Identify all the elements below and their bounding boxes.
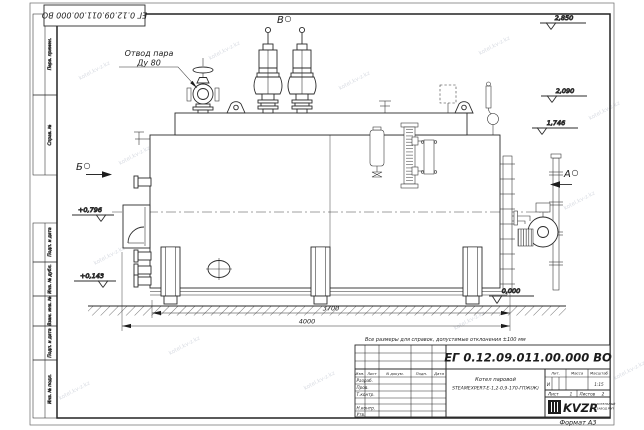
lifting-lug — [227, 102, 245, 113]
pressure-gauge-siphon — [486, 82, 499, 135]
margin-column-podp-data-1: Подп. и дата — [33, 223, 57, 262]
svg-text:2,850: 2,850 — [555, 14, 574, 22]
company-sub-1: КОТЕЛЬНЫЙ — [597, 401, 617, 406]
svg-text:2,090: 2,090 — [556, 87, 575, 95]
sheets-total: 2 — [602, 392, 605, 397]
view-marker-b: Б — [76, 162, 112, 178]
steam-outlet-valve — [187, 58, 219, 113]
col-doc: N докум. — [386, 371, 404, 376]
lifting-lug — [455, 102, 473, 113]
svg-text:Перв. примен.: Перв. примен. — [47, 38, 53, 70]
doc-number: ЕГ 0.12.09.011.00.000 ВО — [444, 351, 612, 365]
col-izm: Изм. — [356, 371, 365, 376]
left-nozzle-mid — [134, 250, 151, 262]
safety-valve — [288, 27, 316, 113]
svg-text:В: В — [277, 15, 284, 26]
product-name: Котел паровой — [475, 377, 516, 383]
margin-column-sprav: Справ. № — [33, 95, 57, 175]
view-marker-v: В — [277, 15, 291, 26]
boiler-general-view-drawing: kotel.kv-z.kz kotel.kv-z.kz kotel.kv-z.k… — [0, 0, 644, 430]
format-label: Формат А3 — [559, 419, 596, 427]
elevation-2850: 2,850 — [540, 14, 586, 30]
top-platform — [175, 113, 467, 135]
svg-text:0,000: 0,000 — [502, 287, 521, 295]
svg-text:Справ. №: Справ. № — [47, 124, 53, 145]
reference-note: Все размеры для справок, допустимые откл… — [365, 337, 526, 343]
support-leg — [463, 247, 482, 304]
svg-text:А: А — [563, 169, 571, 180]
company-name: KVZR — [563, 401, 598, 415]
support-leg — [161, 247, 180, 304]
left-nozzle-upper — [134, 176, 151, 188]
support-leg — [311, 247, 330, 304]
svg-text:+0,796: +0,796 — [78, 206, 102, 214]
svg-text:kotel.kv-z.kz: kotel.kv-z.kz — [478, 35, 511, 56]
scale-label: Масштаб — [590, 371, 609, 376]
left-nozzle-lower — [134, 264, 151, 276]
svg-text:4000: 4000 — [299, 318, 316, 326]
drawing-sheet: kotel.kv-z.kz kotel.kv-z.kz kotel.kv-z.k… — [0, 0, 644, 430]
svg-text:kotel.kv-z.kz: kotel.kv-z.kz — [303, 370, 336, 391]
svg-text:kotel.kv-z.kz: kotel.kv-z.kz — [613, 360, 644, 381]
instrument-box-dashed — [440, 85, 456, 113]
row-razrab: Разраб. — [357, 378, 373, 383]
lit-label: Лит. — [550, 371, 560, 376]
svg-text:kotel.kv-z.kz: kotel.kv-z.kz — [208, 40, 241, 61]
steam-outlet-callout: Отвод пара Ду 80 — [119, 49, 197, 88]
svg-text:3700: 3700 — [323, 305, 340, 313]
svg-text:Подп. и дата: Подп. и дата — [47, 328, 53, 358]
mass-label: Масса — [571, 371, 584, 376]
drain-nozzle — [134, 275, 151, 287]
dimension-4000: 4000 — [122, 318, 510, 329]
top-left-valve — [134, 132, 150, 145]
safety-valve — [254, 27, 282, 113]
row-nkontr: Н.контр. — [357, 406, 376, 411]
svg-text:Инв. № подл.: Инв. № подл. — [47, 374, 53, 404]
burner-box — [123, 205, 150, 248]
sheet-number: 1 — [570, 392, 573, 397]
svg-text:1,746: 1,746 — [547, 119, 566, 127]
elevation-2090: 2,090 — [541, 87, 587, 103]
product-model: STEAMEXPERT-E-1,2-0,9-170-ГПЖ(Ж) — [452, 386, 539, 392]
company-sub-2: ЗАВОД РЭП — [597, 407, 615, 411]
svg-text:Отвод пара: Отвод пара — [125, 49, 174, 58]
col-sign: Подп. — [416, 371, 428, 376]
svg-text:kotel.kv-z.kz: kotel.kv-z.kz — [338, 70, 371, 91]
svg-text:Подп. и дата: Подп. и дата — [47, 227, 53, 257]
svg-text:kotel.kv-z.kz: kotel.kv-z.kz — [93, 245, 126, 266]
margin-column-vzam-inv: Взам. инв. № — [33, 296, 57, 326]
svg-text:kotel.kv-z.kz: kotel.kv-z.kz — [588, 100, 621, 121]
svg-text:kotel.kv-z.kz: kotel.kv-z.kz — [168, 335, 201, 356]
svg-text:kotel.kv-z.kz: kotel.kv-z.kz — [118, 145, 151, 166]
title-block: ЕГ 0.12.09.011.00.000 ВО Изм. Лист N док… — [355, 345, 616, 417]
margin-column-inv-podl: Инв. № подл. — [33, 360, 57, 418]
row-prov: Пров. — [357, 385, 369, 390]
svg-text:Б: Б — [76, 162, 83, 173]
boiler-assembly — [112, 113, 563, 304]
top-stamp: ЕГ 0.12.09.011.00.000 ВО — [42, 5, 147, 26]
feed-pump — [512, 203, 558, 247]
col-date: Дата — [433, 371, 445, 376]
sheet-label: Лист — [547, 392, 559, 397]
svg-text:ЕГ 0.12.09.011.00.000 ВО: ЕГ 0.12.09.011.00.000 ВО — [42, 11, 147, 20]
col-list: Лист — [366, 371, 377, 376]
margin-column-inv-dubl: Инв. № дубл. — [33, 262, 57, 296]
platform-valve — [379, 101, 391, 113]
sheets-label: Листов — [579, 392, 596, 397]
svg-text:Ду 80: Ду 80 — [136, 59, 161, 68]
svg-text:kotel.kv-z.kz: kotel.kv-z.kz — [563, 190, 596, 211]
svg-text:kotel.kv-z.kz: kotel.kv-z.kz — [78, 60, 111, 81]
rear-flange-ring — [500, 156, 515, 292]
scale-value: 1:15 — [594, 382, 604, 387]
elevation-0143: +0,143 — [74, 272, 116, 288]
svg-text:Инв. № дубл.: Инв. № дубл. — [47, 264, 53, 293]
row-tkontr: Т.контр. — [357, 392, 375, 397]
elevation-0796: +0,796 — [72, 206, 114, 222]
svg-text:Взам. инв. №: Взам. инв. № — [47, 296, 53, 326]
row-utv: Утв. — [357, 412, 366, 417]
elevation-1746: 1,746 — [532, 119, 578, 135]
svg-text:+0,143: +0,143 — [80, 272, 104, 280]
margin-column-podp-data-2: Подп. и дата — [33, 326, 57, 360]
svg-text:kotel.kv-z.kz: kotel.kv-z.kz — [58, 380, 91, 401]
